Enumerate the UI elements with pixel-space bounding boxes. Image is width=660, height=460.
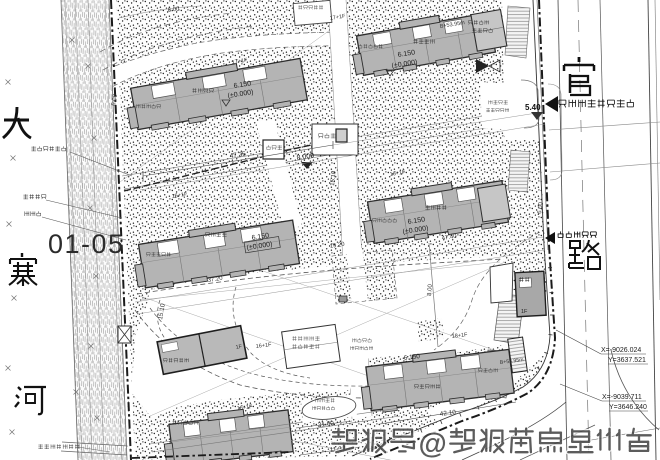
svg-text:5.40: 5.40 [525,103,541,112]
svg-text:Y=3637.521: Y=3637.521 [608,357,646,364]
svg-text:X=-9039.711: X=-9039.711 [602,394,642,401]
svg-text:X=-9026.024: X=-9026.024 [601,347,641,354]
svg-text:1F: 1F [521,309,528,315]
svg-text:@: @ [419,428,447,460]
svg-text:01-05: 01-05 [48,229,125,259]
svg-text:Y=3646.240: Y=3646.240 [609,404,647,411]
